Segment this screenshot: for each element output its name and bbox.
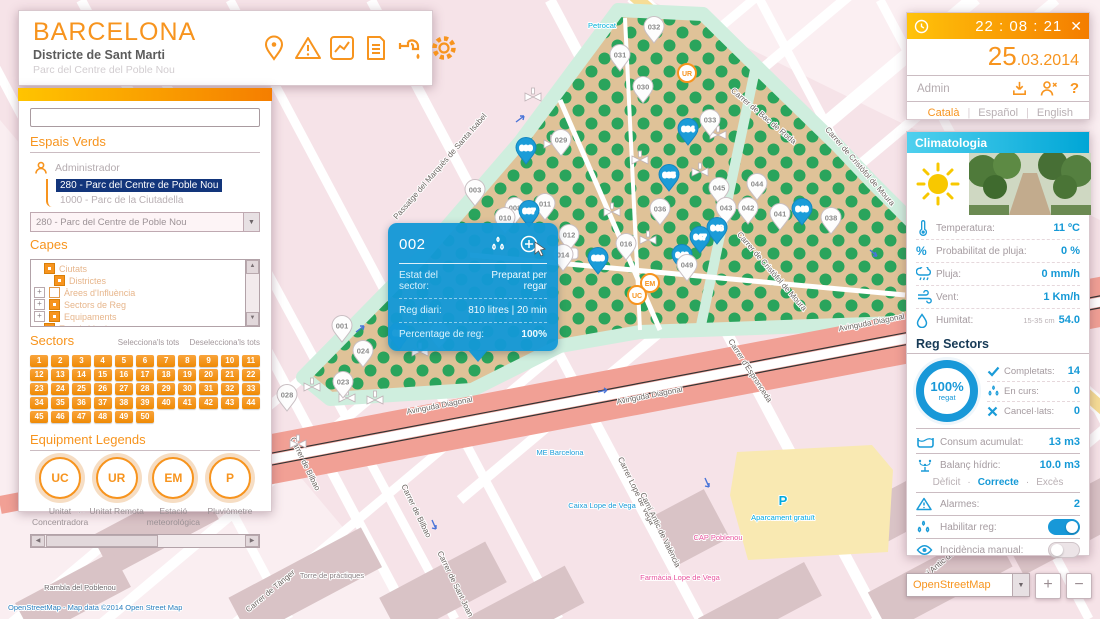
poi-label: Aparcament gratuït (751, 513, 816, 522)
layer-label: Àrees d'Influència (64, 288, 135, 298)
location-icon[interactable] (257, 31, 291, 65)
layer-label: Sectors de Reg (64, 300, 126, 310)
clock-time: 22 : 08 : 21 (929, 18, 1062, 35)
svg-text:030: 030 (637, 83, 650, 92)
svg-text:038: 038 (825, 214, 838, 223)
svg-text:028: 028 (281, 391, 294, 400)
popup-row-reg-diari: Reg diari:810 litres | 20 min (399, 298, 547, 322)
accent-bar (18, 88, 272, 101)
sector-button[interactable]: 38 (115, 397, 133, 409)
sector-button[interactable]: 46 (51, 411, 69, 423)
logout-user-icon[interactable] (1040, 80, 1058, 97)
alarm-icon (916, 497, 940, 511)
svg-text:011: 011 (539, 200, 551, 209)
zoom-out-button[interactable]: − (1066, 573, 1092, 599)
close-icon[interactable]: ✕ (1070, 19, 1082, 33)
chevron-down-icon[interactable]: ▼ (243, 213, 259, 231)
incidencia-manual-toggle[interactable] (1048, 542, 1080, 558)
sector-button[interactable]: 28 (136, 383, 154, 395)
sector-button[interactable]: 33 (242, 383, 260, 395)
sector-button[interactable]: 10 (221, 355, 239, 367)
sector-popup: 002 Estat del sector:Preparat per regar … (388, 223, 558, 351)
climate-panel: Climatologia (906, 131, 1090, 556)
layers-box: CiutatsDistrictes+Àrees d'Influència+Sec… (30, 259, 260, 327)
sector-button[interactable]: 47 (72, 411, 90, 423)
svg-text:031: 031 (614, 51, 627, 60)
sector-button[interactable]: 23 (30, 383, 48, 395)
svg-text:024: 024 (357, 347, 370, 356)
svg-text:048: 048 (711, 224, 724, 233)
cancel-icon (987, 406, 1004, 417)
sector-button[interactable]: 36 (72, 397, 90, 409)
user-name: Admin (917, 83, 950, 95)
humidity-icon (916, 313, 936, 328)
district-subtitle: Districte de Sant Marti (33, 48, 223, 62)
water-drops-icon (490, 235, 514, 253)
sector-button[interactable]: 30 (178, 383, 196, 395)
row-habilitar-reg: Habilitar reg: (916, 516, 1080, 539)
basemap-select[interactable]: OpenStreetMap ▼ (906, 573, 1030, 597)
legend-em-icon: EM (152, 457, 194, 499)
layer-row: +Àrees d'Influència (34, 287, 242, 298)
sector-button[interactable]: 35 (51, 397, 69, 409)
sector-button[interactable]: 11 (242, 355, 260, 367)
svg-text:007: 007 (523, 207, 536, 216)
layer-row: Districtes (34, 275, 242, 286)
legend-item: UCUnitat Concentradora (32, 457, 88, 527)
habilitar-reg-toggle[interactable] (1048, 519, 1080, 535)
clock-icon (914, 19, 929, 34)
svg-text:035: 035 (663, 171, 676, 180)
climatologia-header: Climatologia (907, 132, 1089, 153)
admin-row: Administrador (34, 161, 260, 175)
park-select[interactable]: 280 - Parc del Centre de Poble Nou ▼ (30, 212, 260, 232)
sector-button[interactable]: 40 (157, 397, 175, 409)
settings-icon[interactable] (427, 31, 461, 65)
balance-icon (916, 458, 940, 473)
zoom-in-button[interactable]: + (1035, 573, 1061, 599)
sector-button[interactable]: 4 (94, 355, 112, 367)
svg-text:049: 049 (681, 261, 694, 270)
drops-icon (987, 385, 1004, 397)
layer-checkbox[interactable] (44, 263, 55, 274)
layer-row: Ciutats (34, 263, 242, 274)
svg-text:EM: EM (645, 281, 656, 288)
header-card: BARCELONA Districte de Sant Marti Parc d… (18, 10, 433, 86)
user-icon (34, 161, 48, 175)
layer-row: Espais Verds (34, 323, 242, 326)
horizontal-scrollbar[interactable]: ◀ ▶ (30, 534, 260, 548)
language-english[interactable]: English (1029, 107, 1081, 119)
poi-label: ME Barcelona (536, 448, 584, 457)
row-alarmes: Alarmes: 2 (916, 493, 1080, 516)
reg-sectors-heading: Reg Sectors (907, 333, 1089, 354)
faucet-icon[interactable] (393, 31, 427, 65)
svg-text:010: 010 (499, 214, 512, 223)
climate-row-pluja: Pluja: 0 mm/h (916, 262, 1080, 285)
equipment-legends: UCUnitat ConcentradoraURUnitat RemotaEME… (30, 451, 260, 527)
row-balanc: Balanç hídric: 10.0 m3 (916, 454, 1080, 476)
svg-text:012: 012 (563, 231, 576, 240)
layer-label: Districtes (69, 276, 106, 286)
sector-button[interactable]: 7 (157, 355, 175, 367)
map-marker-UC[interactable]: UC (628, 286, 646, 304)
capes-heading: Capes (30, 237, 260, 255)
svg-text:043: 043 (720, 204, 733, 213)
app-title: BARCELONA (33, 20, 223, 45)
alert-icon[interactable] (291, 31, 325, 65)
stat-cancellats: Cancel·lats: 0 (987, 401, 1080, 421)
sector-button[interactable]: 50 (136, 411, 154, 423)
svg-text:042: 042 (742, 204, 755, 213)
map-attribution: OpenStreetMap - Map data ©2014 Open Stre… (8, 603, 182, 612)
layer-row: +Equipaments (34, 311, 242, 322)
expand-icon[interactable]: + (34, 299, 45, 310)
stat-completats: Completats: 14 (987, 362, 1080, 381)
svg-text:003: 003 (469, 186, 482, 195)
park-subtitle: Parc del Centre del Poble Nou (33, 64, 223, 76)
search-input[interactable] (30, 108, 260, 127)
svg-text:034: 034 (682, 125, 695, 134)
sun-icon (907, 153, 969, 215)
row-incidencia: Incidència manual: (916, 539, 1080, 561)
deselect-all-link[interactable]: Deselecciona'ls tots (190, 338, 260, 347)
download-icon[interactable] (1011, 80, 1028, 97)
chevron-down-icon: ▼ (1012, 574, 1029, 596)
sector-button[interactable]: 31 (199, 383, 217, 395)
balance-scale: Dèficit· Correcte· Excès (916, 476, 1080, 493)
sector-button[interactable]: 20 (199, 369, 217, 381)
layer-label: Espais Verds (59, 324, 112, 327)
climate-row-humitat: Humitat: 15-35 cm 54.0 (916, 308, 1080, 331)
svg-text:029: 029 (555, 136, 568, 145)
sector-button[interactable]: 49 (115, 411, 133, 423)
sector-button[interactable]: 45 (30, 411, 48, 423)
svg-text:032: 032 (648, 23, 661, 32)
sector-button[interactable]: 37 (94, 397, 112, 409)
sector-button[interactable]: 3 (72, 355, 90, 367)
poi-label: Caixa Lope de Vega (568, 501, 636, 510)
park-photo (969, 153, 1091, 215)
legend-item: PPluviòmetre (202, 457, 258, 527)
language-català[interactable]: Català (920, 107, 968, 119)
legend-p-icon: P (209, 457, 251, 499)
svg-text:033: 033 (704, 116, 717, 125)
tree-item-1000[interactable]: 1000 - Parc de la Ciutadella (56, 194, 187, 207)
irrigation-donut: 100% regat (916, 360, 978, 422)
scroll-right-icon: ▶ (245, 535, 259, 547)
poi-label: Torre de pràctiques (300, 571, 364, 580)
language-switcher: Català|Español|English (907, 102, 1089, 124)
climate-row-temperatura: Temperatura: 11 ºC (916, 217, 1080, 239)
sector-button[interactable]: 12 (30, 369, 48, 381)
scroll-down-icon: ▼ (246, 312, 259, 326)
svg-text:044: 044 (751, 180, 764, 189)
popup-row-percentage: Percentage de reg:100% (399, 322, 547, 342)
svg-text:036: 036 (654, 205, 667, 214)
sector-button[interactable]: 15 (94, 369, 112, 381)
poi-label: CAP Poblenou (693, 533, 742, 542)
clock-card: 22 : 08 : 21 ✕ 25.03.2014 Admin ? Català… (906, 12, 1090, 120)
sector-grid: 1234567891011121314151617181920212223242… (30, 355, 260, 423)
sector-button[interactable]: 18 (157, 369, 175, 381)
parking-area (730, 445, 893, 560)
sectors-heading: Sectors (30, 333, 74, 351)
svg-text:009: 009 (520, 144, 533, 153)
row-consum: Consum acumulat: 13 m3 (916, 431, 1080, 454)
eye-icon (916, 544, 940, 556)
legend-label: Pluviòmetre (202, 506, 258, 517)
stat-en-curs: En curs: 0 (987, 381, 1080, 401)
left-sidebar: Espais Verds Administrador 280 - Parc de… (18, 88, 272, 512)
wind-icon (916, 290, 936, 304)
legend-label: Estació meteorológica (145, 506, 201, 527)
sector-button[interactable]: 26 (94, 383, 112, 395)
sector-button[interactable]: 25 (72, 383, 90, 395)
sector-button[interactable]: 32 (221, 383, 239, 395)
svg-text:023: 023 (337, 378, 350, 387)
popup-pointer (468, 350, 488, 362)
sector-button[interactable]: 21 (221, 369, 239, 381)
sector-button[interactable]: 9 (199, 355, 217, 367)
svg-text:016: 016 (620, 240, 633, 249)
expand-icon[interactable]: + (34, 287, 45, 298)
popup-sector-id: 002 (399, 236, 485, 253)
layer-checkbox[interactable] (44, 323, 55, 326)
sector-button[interactable]: 17 (136, 369, 154, 381)
svg-text:001: 001 (336, 322, 349, 331)
svg-text:UR: UR (682, 71, 692, 78)
vertical-scrollbar[interactable]: ▲ ▼ (245, 260, 259, 326)
sector-button[interactable]: 43 (221, 397, 239, 409)
drops-icon (916, 520, 940, 534)
sector-button[interactable]: 6 (136, 355, 154, 367)
legend-ur-icon: UR (96, 457, 138, 499)
sector-button[interactable]: 48 (94, 411, 112, 423)
expand-icon[interactable]: + (34, 311, 45, 322)
legend-label: Unitat Remota (89, 506, 145, 517)
svg-text:047: 047 (694, 233, 707, 242)
layer-checkbox[interactable] (54, 275, 65, 286)
map-marker-UR[interactable]: UR (678, 64, 696, 82)
legend-label: Unitat Concentradora (32, 506, 88, 527)
sector-button[interactable]: 22 (242, 369, 260, 381)
poi-label: P (779, 493, 788, 508)
sector-button[interactable]: 34 (30, 397, 48, 409)
legend-uc-icon: UC (39, 457, 81, 499)
espais-verds-heading: Espais Verds (30, 134, 260, 153)
sector-button[interactable]: 13 (51, 369, 69, 381)
select-all-link[interactable]: Selecciona'ls tots (118, 338, 180, 347)
svg-text:020: 020 (592, 254, 605, 263)
svg-text:040: 040 (796, 205, 809, 214)
sector-button[interactable]: 14 (72, 369, 90, 381)
help-icon[interactable]: ? (1070, 80, 1079, 97)
sector-button[interactable]: 24 (51, 383, 69, 395)
language-español[interactable]: Español (970, 107, 1026, 119)
layer-row: +Sectors de Reg (34, 299, 242, 310)
svg-text:041: 041 (774, 210, 787, 219)
popup-row-estat: Estat del sector:Preparat per regar (399, 264, 547, 298)
climate-row-vent: Vent: 1 Km/h (916, 285, 1080, 308)
percent-icon: % (916, 244, 936, 258)
sector-button[interactable]: 42 (199, 397, 217, 409)
check-icon (987, 366, 1004, 377)
layer-checkbox[interactable] (49, 287, 60, 298)
tree-item-280[interactable]: 280 - Parc del Centre de Poble Nou (56, 179, 222, 192)
legend-item: URUnitat Remota (89, 457, 145, 527)
scrollbar-thumb (46, 535, 158, 547)
scroll-left-icon: ◀ (31, 535, 45, 547)
sector-button[interactable]: 8 (178, 355, 196, 367)
svg-text:UC: UC (632, 293, 642, 300)
legend-item: EMEstació meteorológica (145, 457, 201, 527)
poi-label: Farmàcia Lope de Vega (640, 573, 720, 582)
svg-text:045: 045 (713, 184, 726, 193)
date-display: 25.03.2014 (907, 39, 1089, 76)
sector-button[interactable]: 27 (115, 383, 133, 395)
chart-icon[interactable] (325, 31, 359, 65)
rain-icon (916, 267, 936, 282)
sector-button[interactable]: 44 (242, 397, 260, 409)
poi-label: Rambla del Poblenou (44, 583, 116, 592)
consumption-icon (916, 435, 940, 449)
scroll-up-icon: ▲ (246, 260, 259, 274)
sector-button[interactable]: 5 (115, 355, 133, 367)
layer-checkbox[interactable] (49, 311, 60, 322)
park-tree: 280 - Parc del Centre de Poble Nou 1000 … (46, 179, 260, 207)
report-icon[interactable] (359, 31, 393, 65)
sector-button[interactable]: 29 (157, 383, 175, 395)
cursor-icon (533, 241, 547, 257)
sector-button[interactable]: 41 (178, 397, 196, 409)
sector-button[interactable]: 2 (51, 355, 69, 367)
thermometer-icon (916, 220, 936, 236)
layer-label: Ciutats (59, 264, 87, 274)
sector-button[interactable]: 16 (115, 369, 133, 381)
poi-label: Petrocat (588, 21, 617, 30)
climate-row-probabilitat: % Probabilitat de pluja: 0 % (916, 239, 1080, 262)
sector-button[interactable]: 19 (178, 369, 196, 381)
layer-checkbox[interactable] (49, 299, 60, 310)
svg-text:014: 014 (557, 251, 570, 260)
layer-label: Equipaments (64, 312, 117, 322)
sector-button[interactable]: 39 (136, 397, 154, 409)
sector-button[interactable]: 1 (30, 355, 48, 367)
equipment-legends-heading: Equipment Legends (30, 432, 260, 451)
